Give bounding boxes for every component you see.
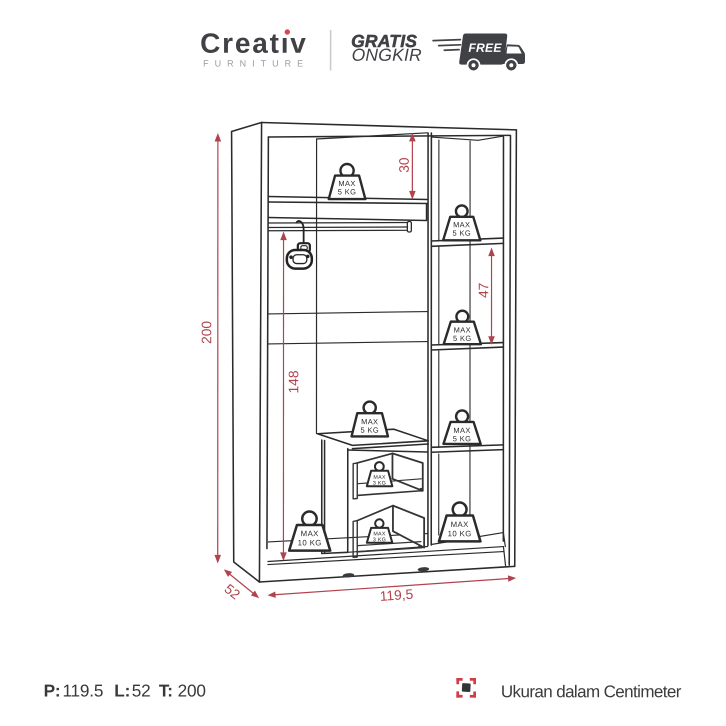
svg-text:MAX: MAX: [451, 520, 469, 529]
svg-text:52: 52: [132, 681, 151, 701]
svg-text:3 KG: 3 KG: [373, 481, 386, 487]
svg-text:5 KG: 5 KG: [453, 334, 472, 343]
svg-text:200: 200: [199, 321, 214, 344]
svg-text:5 KG: 5 KG: [338, 187, 357, 196]
svg-text:148: 148: [286, 370, 301, 393]
svg-text:119.5: 119.5: [62, 680, 103, 700]
svg-text:P:: P:: [44, 680, 61, 700]
svg-text:T:: T:: [159, 681, 173, 701]
svg-text:L:: L:: [114, 681, 130, 701]
svg-text:MAX: MAX: [301, 529, 319, 538]
svg-text:Ukuran dalam Centimeter: Ukuran dalam Centimeter: [501, 682, 682, 701]
svg-text:10 KG: 10 KG: [448, 529, 472, 538]
svg-text:119,5: 119,5: [379, 587, 414, 604]
svg-text:Creatıv: Creatıv: [200, 28, 308, 59]
svg-text:ONGKIR: ONGKIR: [352, 45, 422, 65]
svg-text:10 KG: 10 KG: [298, 538, 322, 547]
svg-text:3 KG: 3 KG: [373, 537, 386, 543]
svg-text:5 KG: 5 KG: [452, 229, 471, 238]
svg-text:200: 200: [178, 681, 206, 701]
svg-text:FREE: FREE: [468, 41, 502, 55]
svg-text:5 KG: 5 KG: [360, 426, 379, 435]
svg-text:FURNITURE: FURNITURE: [203, 58, 309, 68]
svg-text:30: 30: [397, 157, 412, 173]
svg-text:5 KG: 5 KG: [453, 434, 472, 443]
svg-text:47: 47: [476, 283, 491, 298]
